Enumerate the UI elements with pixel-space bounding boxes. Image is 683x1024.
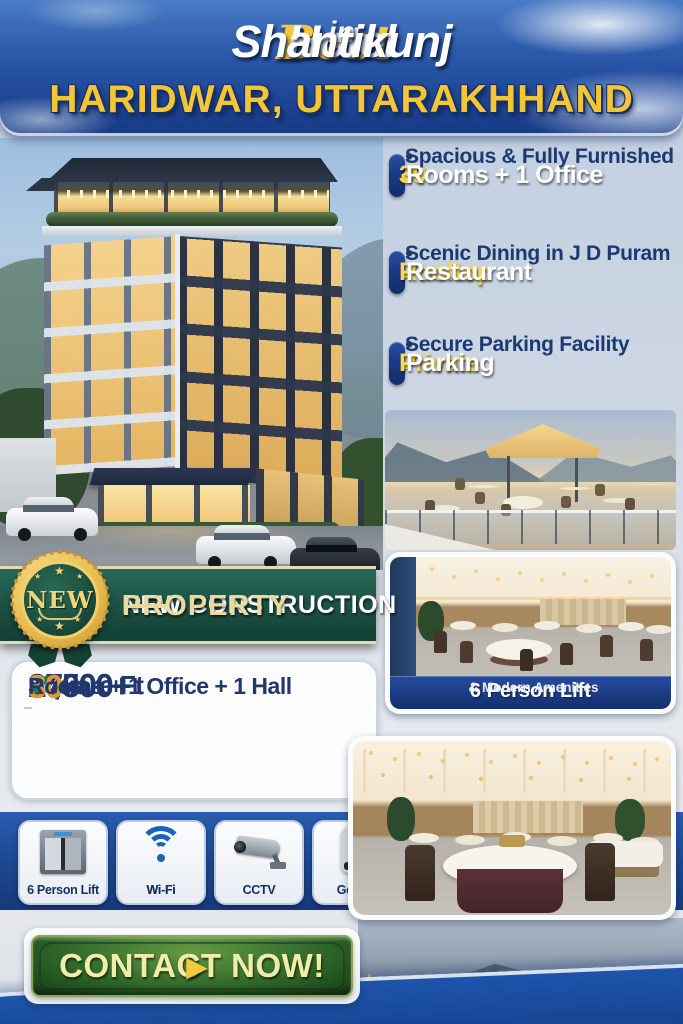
parked-car-white (6, 508, 98, 536)
rooftop-terrace-photo (385, 410, 676, 550)
table-skirt-decor (457, 869, 563, 913)
banquet-tables-back (409, 833, 439, 843)
arrow-icon: ▶ (186, 950, 208, 983)
title-word-place: Shantikunj (231, 16, 451, 68)
pavilion-posts-decor (54, 182, 330, 214)
plant-decor (615, 799, 645, 841)
plant-decor (418, 601, 444, 641)
specs-checklist-card: ✔ 2750 Square Ft ✔ 14000+ Square Ft ✔ 30… (10, 660, 378, 800)
amenity-label: CCTV (243, 884, 276, 898)
curtain-decor (540, 599, 626, 625)
hotel-building-photo (0, 138, 383, 570)
banquet-chair (585, 843, 615, 901)
header-band: Best Hotel in Shantikunj HARIDWAR, UTTAR… (0, 0, 683, 136)
checklist-row: ✔ 30 Rooms + 1 Office + 1 Hall (24, 664, 32, 709)
camera-base-decor (270, 862, 286, 869)
curtain-decor (473, 801, 583, 833)
banquet-hall-card: 6 Person Lift & Modern Amenities (385, 552, 676, 714)
lift-caption-bar: 6 Person Lift & Modern Amenities (390, 676, 671, 709)
amenity-label-line2: Wi-Fi (147, 884, 176, 898)
banquet-tables-back (450, 621, 476, 630)
star-icon: ★ (76, 573, 83, 581)
ceiling-lights-decor (369, 751, 373, 755)
amenity-label: 6 Person Lift (27, 884, 99, 898)
contact-cta-card: CONTACT NOW! ▶ (24, 928, 360, 1004)
cctv-camera-icon (230, 834, 290, 870)
amenity-card-lift: 6 Person Lift (18, 820, 108, 905)
star-icon: ★ (54, 565, 65, 577)
dash-decor (132, 604, 168, 608)
elevator-display-decor (54, 832, 72, 836)
feature-bullet-row: • Secure Parking Facility (385, 338, 411, 355)
feature-bullet-row: • Spacious & Fully Furnished (385, 150, 411, 167)
car-wheels (18, 528, 31, 541)
main-title: Best Hotel in Shantikunj (0, 16, 683, 74)
car-cabin (23, 497, 75, 512)
banquet-hall-photo (390, 557, 671, 676)
terrace-umbrella (485, 424, 601, 458)
lift-caption-rest: & Modern Amenities (468, 680, 598, 695)
hotel-flyer-poster: Best Hotel in Shantikunj HARIDWAR, UTTAR… (0, 0, 683, 1024)
banquet-hall-large-card (348, 736, 676, 920)
star-icon: ★ (34, 573, 41, 581)
star-icon: ★ (54, 620, 65, 632)
feature-bullet-row: • Scenic Dining in J D Puram (385, 247, 411, 264)
building-parapet (42, 226, 342, 236)
entrance-canopy (90, 468, 253, 485)
feature-bullet-text: Secure Parking Facility (405, 333, 629, 357)
feature-bullet-text: Spacious & Fully Furnished (405, 145, 674, 169)
amenity-card-wifi: Wi-Fi Wi-Fi (116, 820, 206, 905)
banquet-table-front (486, 639, 552, 660)
elevator-icon (40, 830, 86, 874)
spec-unit: Rooms + 1 Office + 1 Hall (28, 673, 292, 700)
building-facade-left (44, 236, 178, 475)
subtitle-location: HARIDWAR, UTTARAKHHAND (0, 78, 683, 122)
wifi-dot-decor (157, 854, 165, 862)
building-corner-edge (175, 234, 180, 474)
laurel-decor (38, 608, 82, 620)
building-facade-right (178, 236, 342, 489)
ceiling-lights-decor (430, 567, 434, 571)
banquet-hall-large-photo (353, 741, 671, 915)
lobby-glow (98, 485, 250, 527)
elevator-doors-decor (45, 838, 81, 870)
contact-now-button[interactable]: CONTACT NOW! ▶ (31, 935, 353, 997)
banquet-chairs (460, 641, 473, 663)
wifi-icon (139, 826, 183, 864)
feature-bullet-text: Scenic Dining in J D Puram (405, 242, 670, 266)
terrace-tables (503, 496, 543, 509)
ceiling-strips-decor (363, 749, 661, 793)
parked-car-white (196, 536, 296, 564)
rooftop-greenery (46, 212, 338, 227)
table-centerpiece-decor (499, 835, 525, 847)
amenity-card-cctv: CCTV (214, 820, 304, 905)
rooftop-pavilion-glow (54, 182, 330, 214)
new-badge: NEW ★ ★ ★ ★ ★ ★ (12, 552, 108, 648)
banquet-chair (405, 845, 435, 901)
car-cabin (306, 537, 356, 552)
car-cabin (214, 525, 270, 540)
terrace-chairs (475, 492, 485, 504)
umbrella-poles (507, 456, 510, 500)
